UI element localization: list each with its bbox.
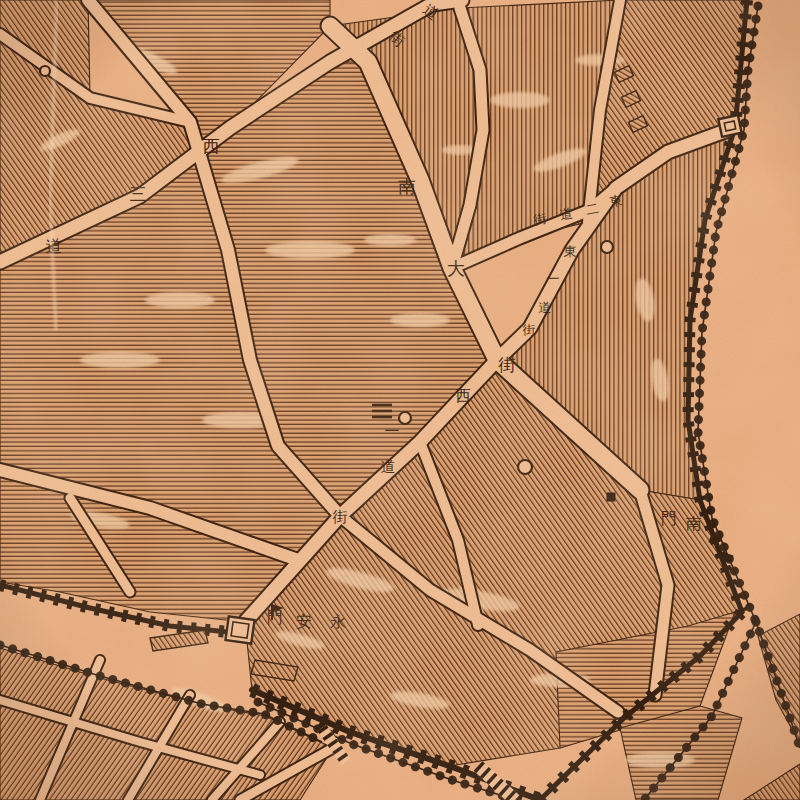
map-canvas: 西三道道街南大街西一道街東一道街東二道街永安門南門: [0, 0, 800, 800]
paper-texture-overlay: [0, 0, 800, 800]
vignette: [0, 0, 800, 800]
historical-city-map: 西三道道街南大街西一道街東一道街東二道街永安門南門: [0, 0, 800, 800]
